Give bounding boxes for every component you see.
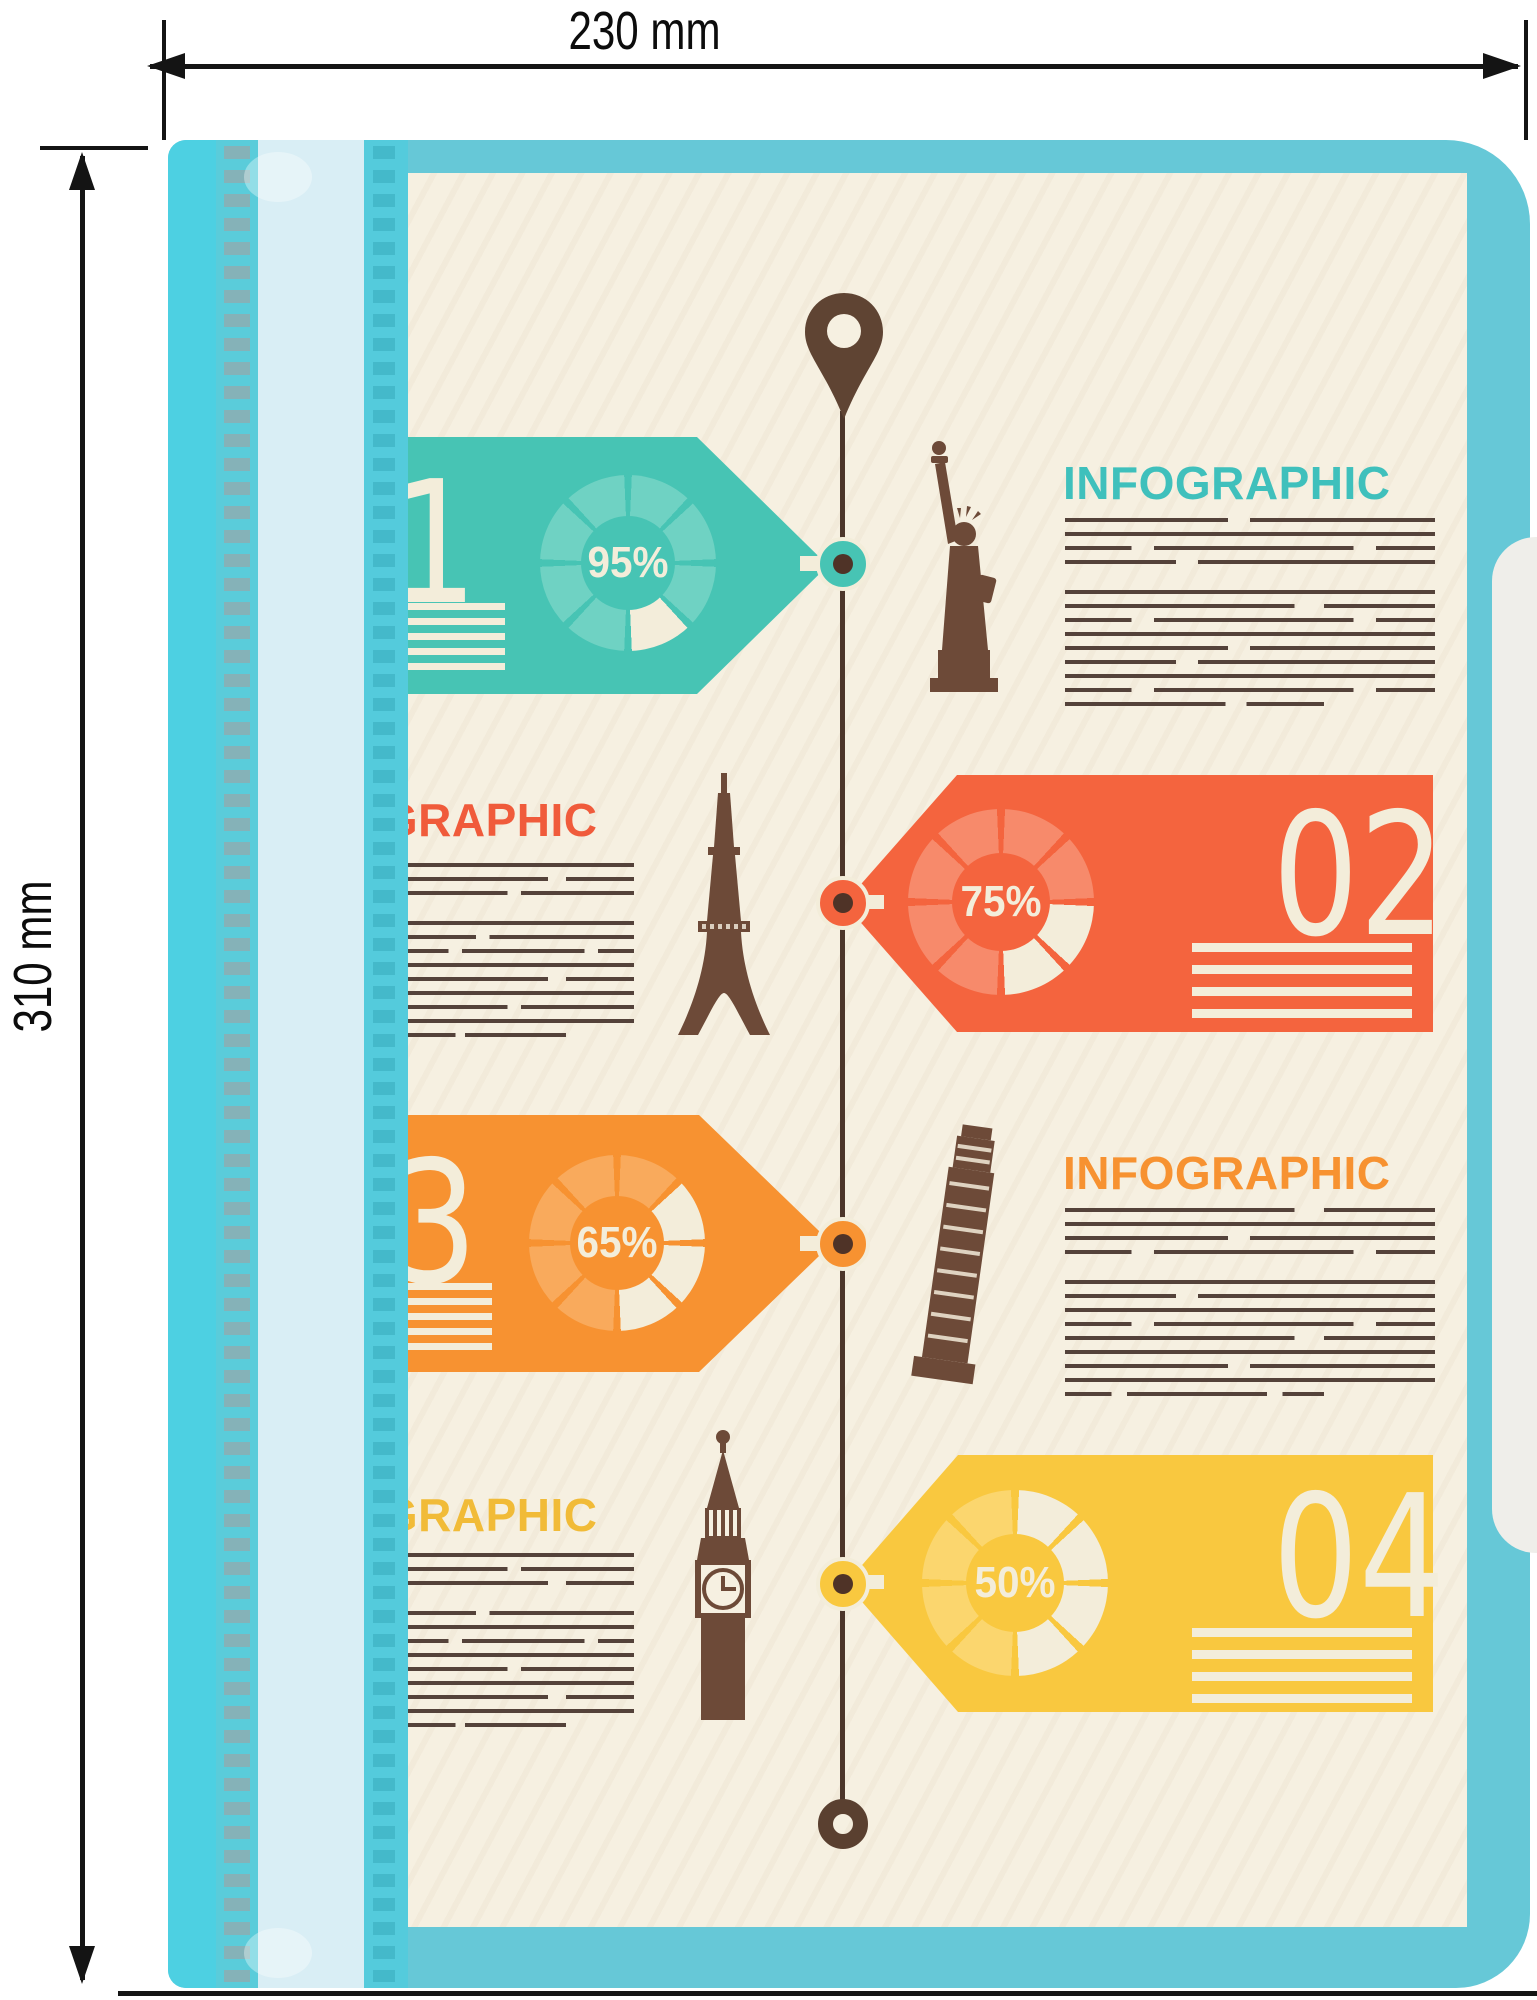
- tag4-placeholder-bars: [1192, 1628, 1412, 1716]
- tag3-placeholder-bars: [408, 1283, 492, 1358]
- product-dimension-diagram: 230 mm 310 mm 95%: [0, 0, 1537, 2000]
- width-extension-line-right: [1524, 20, 1528, 140]
- section-4-heading: INFOGRAPHIC: [408, 1488, 598, 1542]
- bottom-extension-line: [118, 1991, 1537, 1996]
- pie-chart-95: 95%: [540, 475, 716, 651]
- leaning-tower-of-pisa-icon: [898, 1103, 1002, 1387]
- section-1-heading: INFOGRAPHIC: [1063, 456, 1391, 510]
- pie-chart-50: 50%: [922, 1490, 1108, 1676]
- pie-percent-label: 65%: [570, 1196, 664, 1290]
- tag2-placeholder-bars: [1192, 943, 1412, 1031]
- section-4-placeholder-text: [408, 1553, 634, 1737]
- section-3-heading: INFOGRAPHIC: [1063, 1146, 1391, 1200]
- timeline-connector-1: [816, 537, 870, 591]
- width-dimension-label: 230 mm: [470, 0, 820, 62]
- folder-left-edge: [168, 140, 216, 1988]
- eiffel-tower-icon: [676, 773, 772, 1037]
- timeline-connector-3: [816, 1217, 870, 1271]
- pie-percent-label: 75%: [952, 853, 1050, 951]
- section-2-placeholder-text: [408, 863, 634, 1047]
- folder-binding-strip-inner: [364, 140, 408, 1988]
- location-pin-icon: [803, 291, 885, 421]
- plastic-display-folder: 95% 75% 65% 50% 01 02 03 04: [168, 140, 1530, 1988]
- section-3-placeholder-text: [1065, 1208, 1435, 1406]
- width-extension-line-left: [162, 20, 166, 140]
- tag1-placeholder-bars: [408, 603, 505, 678]
- big-ben-icon: [683, 1428, 763, 1720]
- punch-hole-bottom: [244, 1928, 312, 1978]
- infographic-page: 95% 75% 65% 50% 01 02 03 04: [408, 173, 1467, 1927]
- folder-thumb-notch: [1492, 537, 1537, 1553]
- timeline-end-ring: [818, 1799, 868, 1849]
- width-dimension-arrow: [150, 64, 1518, 69]
- height-dimension-label: 310 mm: [2, 884, 64, 1054]
- pie-chart-75: 75%: [908, 809, 1094, 995]
- pie-percent-label: 50%: [966, 1534, 1064, 1632]
- section-1-placeholder-text: [1065, 518, 1435, 716]
- punch-hole-top: [244, 152, 312, 202]
- height-dimension-arrow: [80, 156, 85, 1980]
- timeline-connector-4: [816, 1557, 870, 1611]
- statue-of-liberty-icon: [908, 438, 1018, 700]
- folder-spine-strip: [258, 140, 364, 1988]
- timeline-connector-2: [816, 876, 870, 930]
- height-extension-line-top: [40, 146, 148, 150]
- section-2-heading: INFOGRAPHIC: [408, 793, 598, 847]
- folder-binding-strip: [216, 140, 258, 1988]
- section-number-4: 04: [1272, 1473, 1418, 1643]
- pie-chart-65: 65%: [529, 1155, 705, 1331]
- pie-percent-label: 95%: [581, 516, 675, 610]
- section-number-2: 02: [1272, 791, 1418, 961]
